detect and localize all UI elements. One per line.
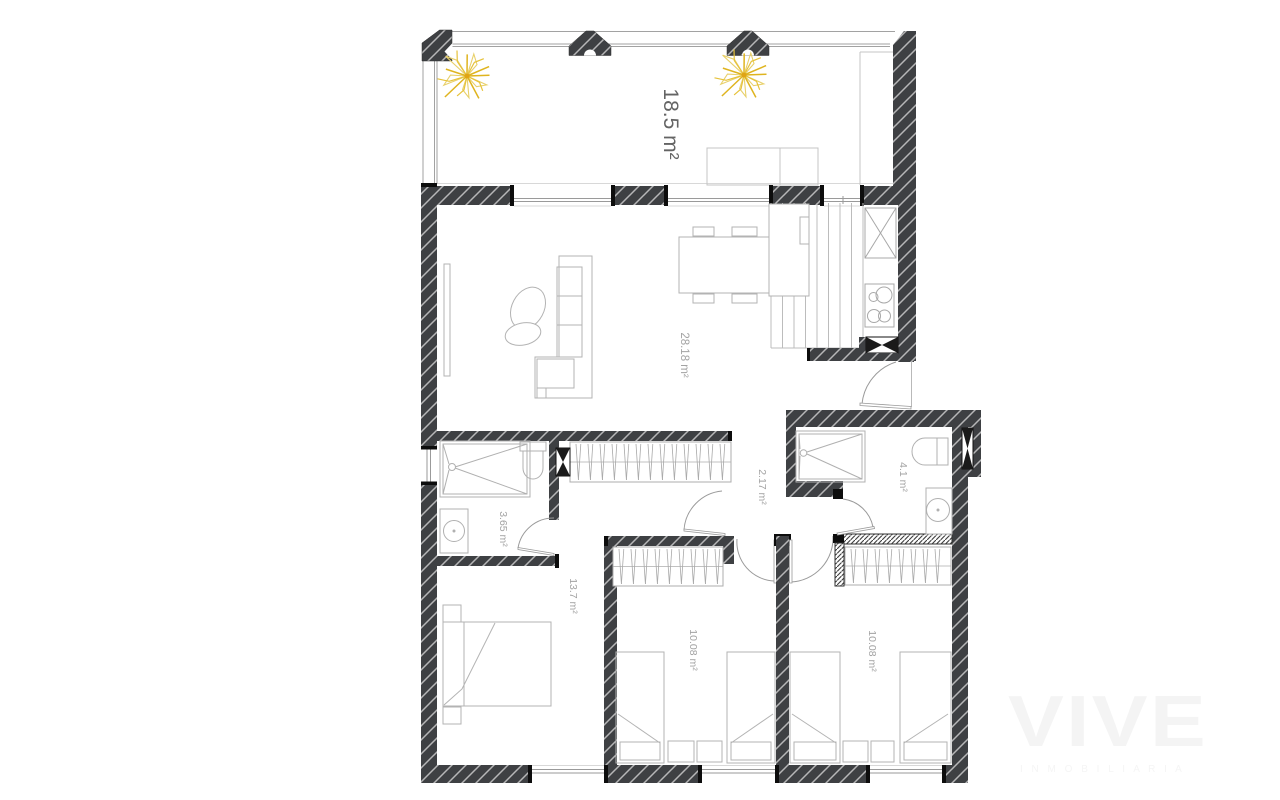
svg-text:2.17 m²: 2.17 m² bbox=[756, 469, 768, 505]
svg-text:VIVE: VIVE bbox=[1008, 682, 1208, 762]
svg-text:10.08 m²: 10.08 m² bbox=[687, 629, 699, 671]
svg-text:10.08 m²: 10.08 m² bbox=[866, 630, 878, 672]
svg-text:4.1 m²: 4.1 m² bbox=[897, 462, 909, 492]
svg-text:13.7 m²: 13.7 m² bbox=[567, 578, 579, 614]
svg-text:3.65 m²: 3.65 m² bbox=[497, 511, 509, 547]
svg-text:28.18 m²: 28.18 m² bbox=[678, 332, 690, 378]
svg-text:18.5 m²: 18.5 m² bbox=[659, 88, 682, 159]
svg-text:I N M O B I L I A R I A: I N M O B I L I A R I A bbox=[1020, 764, 1185, 775]
